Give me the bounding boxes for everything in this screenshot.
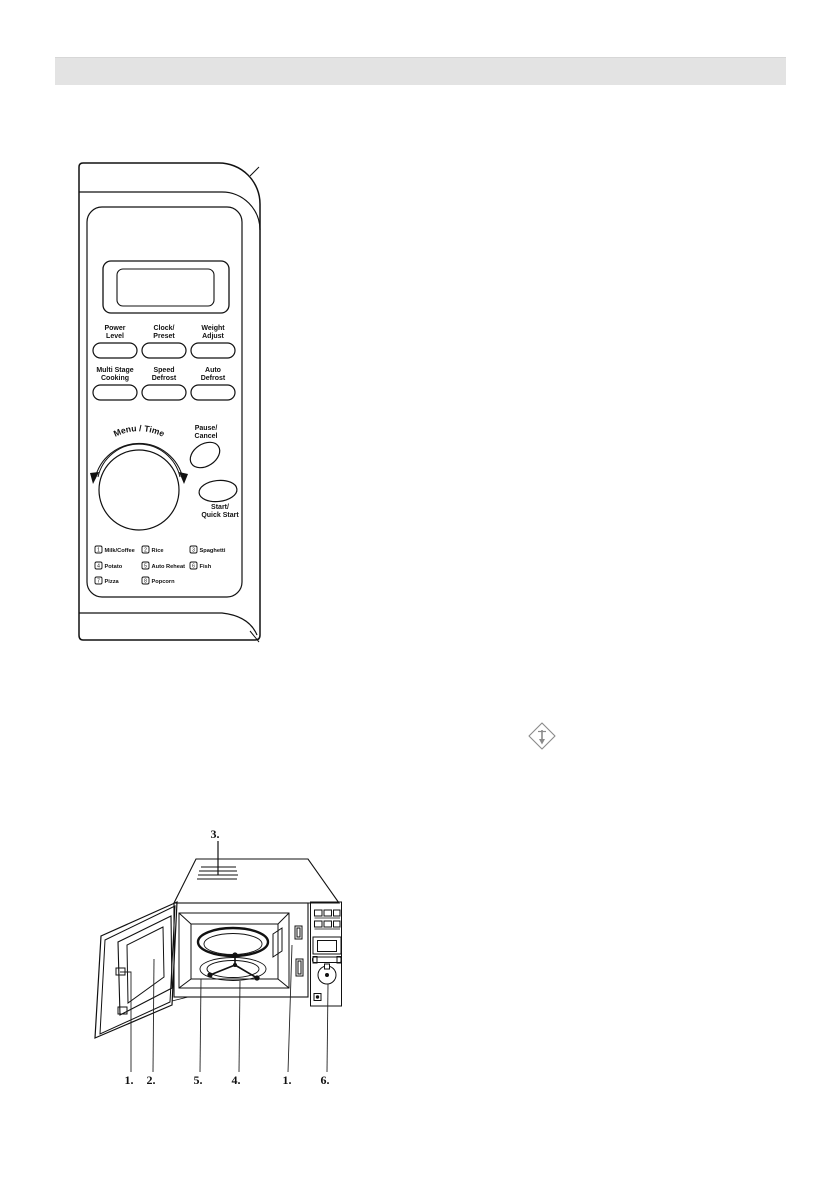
pause-cancel-key <box>186 437 225 473</box>
door-window-glass <box>127 927 164 1003</box>
oven-cavity <box>179 913 289 988</box>
panel-handle <box>313 957 342 964</box>
preset-label: Rice <box>152 548 164 554</box>
auto-defrost-label: Defrost <box>201 375 226 382</box>
panel-small-button <box>314 994 321 1001</box>
preset-number: 4 <box>97 564 100 570</box>
button-labels-row1: Power Level Clock/ Preset Weight Adjust <box>104 325 225 340</box>
panel-knob <box>318 964 336 984</box>
turntable-shaft <box>233 963 236 966</box>
control-panel-figure: Power Level Clock/ Preset Weight Adjust … <box>78 160 264 646</box>
header-bar <box>55 57 786 85</box>
leader-line-5 <box>200 979 201 1072</box>
callout-6: 6. <box>321 1073 330 1087</box>
certification-diamond-icon <box>528 722 556 750</box>
preset-number: 5 <box>144 564 147 570</box>
leader-lines <box>120 945 328 1072</box>
leader-line-2 <box>153 959 154 1072</box>
front-face <box>174 903 308 997</box>
roller-wheel <box>255 976 259 980</box>
speed-defrost-button <box>142 385 186 400</box>
callout-2: 2. <box>147 1073 156 1087</box>
preset-label: Fish <box>200 564 212 570</box>
arrow-right-icon <box>179 472 188 484</box>
pause-cancel-label: Pause/ <box>195 425 218 432</box>
dial-label: Menu / Time <box>112 423 166 439</box>
start-label: Start/ <box>211 504 229 511</box>
preset-menu-list: 1 Milk/Coffee 2 Rice 3 Spaghetti 4 Potat… <box>95 546 226 585</box>
pause-cancel-button: Pause/ Cancel <box>186 425 225 473</box>
preset-number: 3 <box>192 548 195 554</box>
clock-preset-label: Clock/ <box>153 325 174 332</box>
power-level-label: Level <box>106 333 124 340</box>
preset-number: 1 <box>97 548 100 554</box>
panel-display-inner <box>318 941 337 952</box>
buttons-row1 <box>93 343 235 358</box>
oven-door <box>95 902 188 1038</box>
auto-defrost-button <box>191 385 235 400</box>
arrow-left-icon <box>90 472 99 484</box>
weight-adjust-label: Adjust <box>202 333 224 340</box>
preset-label: Milk/Coffee <box>105 548 135 554</box>
preset-item-fish: 6 Fish <box>190 562 212 570</box>
leader-line-4 <box>239 981 240 1072</box>
multi-stage-label: Cooking <box>101 375 129 382</box>
pause-cancel-label: Cancel <box>195 433 218 440</box>
weight-adjust-label: Weight <box>201 325 225 332</box>
manual-page: Power Level Clock/ Preset Weight Adjust … <box>0 0 840 1192</box>
roller-wheel <box>233 953 237 957</box>
preset-item-popcorn: 8 Popcorn <box>142 577 175 585</box>
svg-text:Menu / Time: Menu / Time <box>112 423 166 439</box>
start-label: Quick Start <box>201 512 239 519</box>
top-face <box>174 859 339 903</box>
panel-face <box>87 207 242 597</box>
buttons-row2 <box>93 385 235 400</box>
preset-label: Popcorn <box>152 579 176 585</box>
oven-figure: 3. <box>88 818 398 1093</box>
panel-outline <box>79 163 260 642</box>
preset-label: Potato <box>105 564 123 570</box>
side-control-panel <box>311 902 342 1006</box>
clock-preset-label: Preset <box>153 333 175 340</box>
preset-label: Pizza <box>105 579 120 585</box>
callout-1b: 1. <box>283 1073 292 1087</box>
glass-tray <box>198 928 268 956</box>
roller-wheel <box>208 973 212 977</box>
preset-item-potato: 4 Potato <box>95 562 123 570</box>
preset-label: Auto Reheat <box>152 564 186 570</box>
preset-number: 7 <box>97 579 100 585</box>
bottom-callouts: 1. 2. 5. 4. 1. 6. <box>125 1073 330 1087</box>
preset-item-rice: 2 Rice <box>142 546 164 554</box>
display-window <box>103 261 229 313</box>
speed-defrost-label: Defrost <box>152 375 177 382</box>
panel-buttons <box>315 910 341 929</box>
latch-slots <box>295 926 303 976</box>
callout-1a: 1. <box>125 1073 134 1087</box>
preset-number: 8 <box>144 579 147 585</box>
preset-number: 6 <box>192 564 195 570</box>
preset-label: Spaghetti <box>200 548 226 554</box>
power-level-label: Power <box>104 325 125 332</box>
start-key <box>198 479 238 504</box>
callout-3: 3. <box>211 827 220 841</box>
preset-item-milk-coffee: 1 Milk/Coffee <box>95 546 135 554</box>
multi-stage-button <box>93 385 137 400</box>
power-level-button <box>93 343 137 358</box>
door-latch-upper <box>116 968 125 975</box>
leader-line-6 <box>327 984 328 1072</box>
button-labels-row2: Multi Stage Cooking Speed Defrost Auto D… <box>96 367 226 382</box>
preset-item-pizza: 7 Pizza <box>95 577 120 585</box>
start-quick-start-button: Start/ Quick Start <box>198 479 239 519</box>
menu-time-dial: Menu / Time <box>88 423 190 530</box>
auto-defrost-label: Auto <box>205 367 221 374</box>
dial-knob <box>99 450 179 530</box>
multi-stage-label: Multi Stage <box>96 367 133 374</box>
preset-number: 2 <box>144 548 147 554</box>
speed-defrost-label: Speed <box>153 367 174 374</box>
preset-item-auto-reheat: 5 Auto Reheat <box>142 562 185 570</box>
callout-5: 5. <box>194 1073 203 1087</box>
clock-preset-button <box>142 343 186 358</box>
callout-4: 4. <box>232 1073 241 1087</box>
cavity-back-wall <box>191 924 278 979</box>
weight-adjust-button <box>191 343 235 358</box>
preset-item-spaghetti: 3 Spaghetti <box>190 546 226 554</box>
